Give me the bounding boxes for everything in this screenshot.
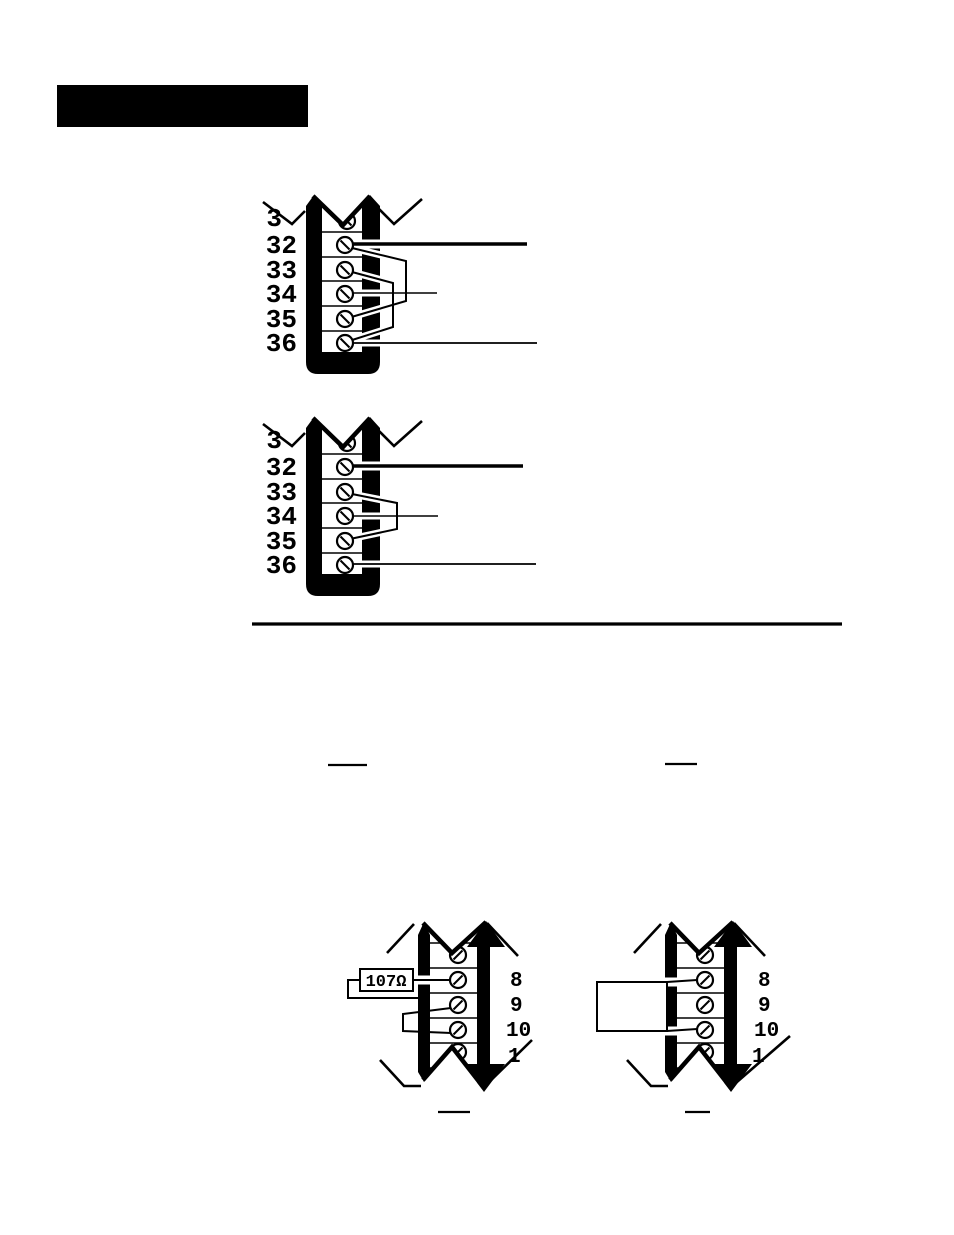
screw-terminal-9-icon: [697, 997, 713, 1013]
break-mark-right: [379, 421, 422, 446]
terminal-label: 3: [266, 426, 282, 456]
device-box: [597, 982, 667, 1031]
screw-terminal-8-icon: [697, 972, 713, 988]
break-mark-right: [379, 199, 422, 224]
screw-terminal-10-icon: [450, 1022, 466, 1038]
terminal-label: 9: [510, 995, 523, 1018]
screw-terminal-9-icon: [450, 997, 466, 1013]
redacted-header-bar: [57, 85, 308, 127]
tear-mask: [322, 186, 362, 225]
manual-page: 3 32 33 34 35 36: [0, 0, 954, 1235]
terminal-label: 10: [506, 1020, 531, 1043]
terminal-label: 36: [266, 551, 297, 581]
terminal-label: 9: [758, 995, 771, 1018]
tear-mask: [322, 408, 362, 447]
screw-terminal-33-icon: [337, 484, 353, 500]
break-mark: [387, 924, 414, 953]
terminal-strip-diagram-device: 8 9 10 1: [597, 905, 790, 1112]
screw-terminal-33-icon: [337, 262, 353, 278]
strip-right-bar: [724, 940, 737, 1066]
terminal-label: 3: [266, 204, 282, 234]
screw-terminal-34-icon: [337, 508, 353, 524]
terminal-label: 8: [510, 970, 523, 993]
screw-terminal-10-icon: [697, 1022, 713, 1038]
screw-terminal-36-icon: [337, 335, 353, 351]
screw-terminal-35-icon: [337, 533, 353, 549]
terminal-block-diagram-middle: 3 32 33 34 35 36: [263, 408, 536, 596]
terminal-label: 8: [758, 970, 771, 993]
strip-left-bar: [418, 922, 430, 1082]
resistor-value-label: 107Ω: [366, 973, 407, 992]
terminal-block-diagram-upper: 3 32 33 34 35 36: [263, 186, 537, 374]
screw-terminal-34-icon: [337, 286, 353, 302]
terminal-label: 10: [754, 1020, 779, 1043]
strip-right-bar: [477, 940, 490, 1066]
terminal-label: 1: [508, 1046, 521, 1069]
break-mark: [380, 1060, 421, 1086]
terminal-strip-diagram-resistor: 107Ω 8 9 10 1: [348, 905, 532, 1112]
break-mark: [627, 1060, 668, 1086]
screw-terminal-8-icon: [450, 972, 466, 988]
break-mark: [634, 924, 661, 953]
block-left-bar: [306, 195, 322, 356]
terminal-label: 1: [752, 1046, 765, 1069]
terminal-label: 36: [266, 329, 297, 359]
screw-terminal-32-icon: [337, 237, 353, 253]
page-canvas: 3 32 33 34 35 36: [0, 0, 954, 1235]
screw-terminal-35-icon: [337, 311, 353, 327]
block-left-bar: [306, 417, 322, 578]
screw-terminal-36-icon: [337, 557, 353, 573]
screw-terminal-32-icon: [337, 459, 353, 475]
